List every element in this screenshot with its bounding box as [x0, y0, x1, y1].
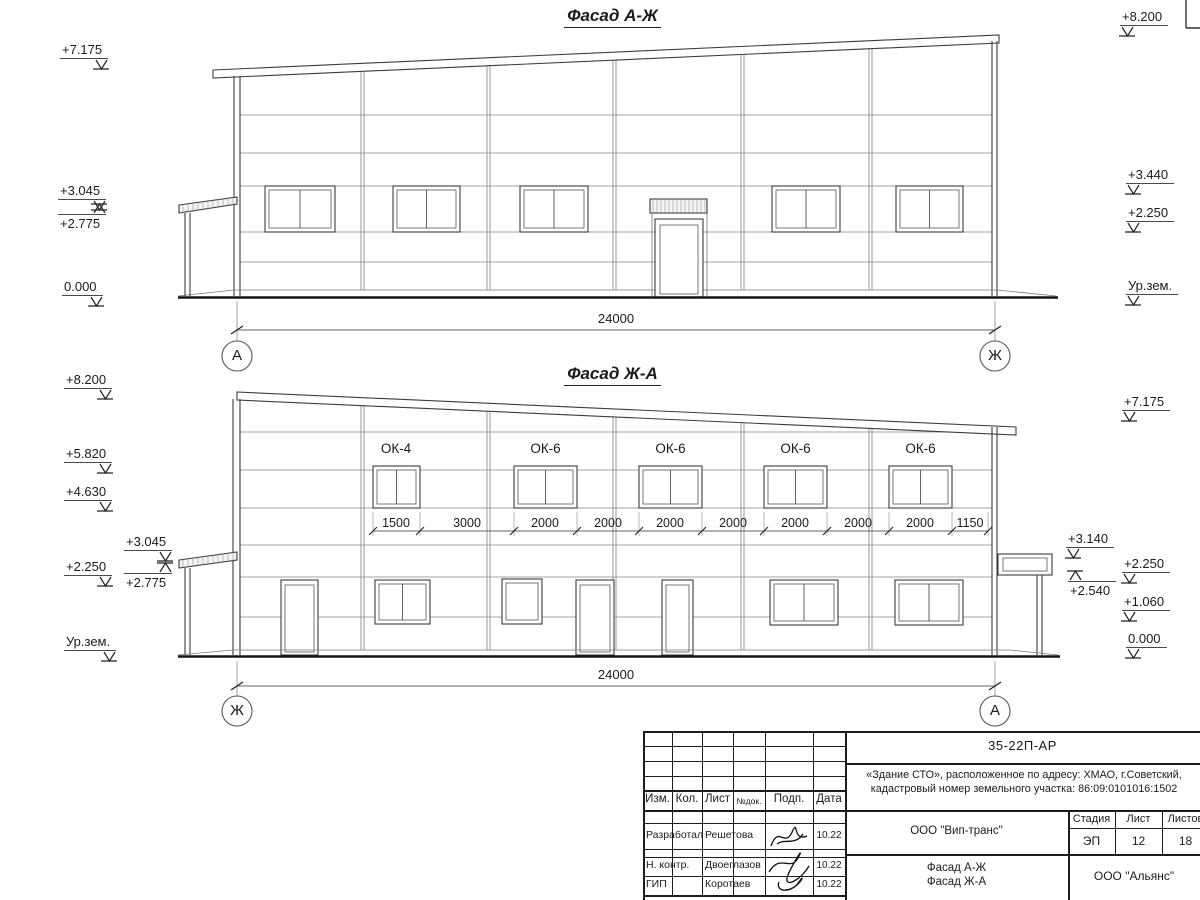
dimension-value: 2000	[710, 516, 756, 530]
elevation-mark: +3.045	[124, 534, 172, 551]
titleblock-line	[1068, 828, 1200, 829]
dimension-value: 2000	[835, 516, 881, 530]
sheets-total: 18	[1162, 834, 1200, 848]
elevation-mark: 0.000	[1126, 631, 1167, 648]
elevation-mark: +2.775	[124, 573, 172, 590]
elevation-value: +2.250	[1122, 556, 1170, 573]
dimension-value: 2000	[897, 516, 943, 530]
document-number: 35-22П-АР	[845, 738, 1200, 753]
window	[772, 186, 840, 232]
elevation-value: +3.045	[124, 534, 172, 551]
elevation-arrow-down-icon	[1120, 411, 1138, 422]
facade-title-text: Фасад Ж-А	[564, 364, 661, 386]
signer-role: Н. контр.	[646, 859, 689, 871]
sheet-corner	[1186, 0, 1200, 28]
overall-dimension: 24000	[585, 667, 647, 682]
facade-bottom-title: Фасад Ж-А	[555, 364, 670, 384]
sheet-number: 12	[1115, 834, 1162, 848]
elevation-arrow-down-icon	[1120, 573, 1138, 584]
door	[281, 580, 318, 655]
axis-label: А	[980, 696, 1010, 726]
titleblock-line	[845, 731, 847, 900]
titleblock-line	[643, 731, 645, 900]
project-description: «Здание СТО», расположенное по адресу: Х…	[848, 768, 1200, 796]
entrance-door	[650, 199, 707, 297]
elevation-value: +2.775	[58, 214, 106, 231]
elevation-value: +8.200	[1120, 9, 1168, 26]
dimension-value: 2000	[585, 516, 631, 530]
column-header-ndok: №док.	[733, 796, 765, 806]
porch-left	[179, 197, 237, 296]
elevation-value: +1.060	[1122, 594, 1170, 611]
elevation-value: Ур.зем.	[1126, 278, 1178, 295]
window	[895, 580, 963, 625]
elevation-arrow-down-icon	[1124, 222, 1142, 233]
walls	[234, 41, 997, 296]
elevation-arrow-up-icon	[90, 203, 108, 214]
elevation-mark: +2.540	[1068, 581, 1116, 598]
elevation-value: +5.820	[64, 446, 112, 463]
dimension-value: 2000	[772, 516, 818, 530]
sheets-header: Листов	[1162, 813, 1200, 825]
elevation-arrow-down-icon	[1124, 648, 1142, 659]
elevation-value: +2.540	[1068, 581, 1116, 598]
titleblock-line	[643, 810, 845, 812]
window	[393, 186, 460, 232]
titleblock-line	[845, 854, 1200, 856]
elevation-mark: Ур.зем.	[1126, 278, 1178, 295]
project-description-line1: «Здание СТО», расположенное по адресу: Х…	[866, 769, 1181, 781]
door	[662, 580, 693, 655]
bay-joints	[361, 48, 872, 290]
axis-label: Ж	[222, 696, 252, 726]
elevation-value: +2.775	[124, 573, 172, 590]
elevation-value: +7.175	[60, 42, 108, 59]
elevation-value: +2.250	[1126, 205, 1174, 222]
elevation-value: 0.000	[62, 279, 103, 296]
elevation-mark: +5.820	[64, 446, 112, 463]
window	[520, 186, 588, 232]
window	[373, 466, 420, 508]
titleblock-line	[643, 776, 845, 777]
elevation-mark: +3.440	[1126, 167, 1174, 184]
elevation-mark: +1.060	[1122, 594, 1170, 611]
elevation-value: +4.630	[64, 484, 112, 501]
window	[375, 580, 430, 624]
elevation-value: 0.000	[1126, 631, 1167, 648]
elevation-arrow-down-icon	[1120, 611, 1138, 622]
window	[764, 466, 827, 508]
plinth	[178, 290, 1056, 296]
titleblock-line	[643, 761, 845, 762]
elevation-arrow-down-icon	[87, 296, 105, 307]
canopy-right	[998, 554, 1052, 655]
sheet-header: Лист	[1115, 813, 1162, 825]
window-label: ОК-6	[514, 441, 577, 456]
title-block: 35-22П-АР «Здание СТО», расположенное по…	[643, 731, 1200, 900]
window	[889, 466, 952, 508]
porch-left	[179, 552, 237, 655]
signature	[763, 816, 827, 898]
stage-header: Стадия	[1068, 813, 1115, 825]
elevation-arrow-down-icon	[96, 576, 114, 587]
signer-role: Разработал	[646, 829, 703, 841]
window-label: ОК-6	[764, 441, 827, 456]
elevation-arrow-up-icon	[156, 562, 174, 573]
signer-name: Коротаев	[705, 878, 750, 890]
sheet-title-line1: Фасад А-Ж	[845, 862, 1068, 874]
signer-role: ГИП	[646, 878, 667, 890]
elevation-arrow-down-icon	[1118, 26, 1136, 37]
roof-fascia	[213, 35, 999, 78]
titleblock-line	[845, 763, 1200, 765]
client-name: ООО "Вип-транс"	[845, 825, 1068, 837]
elevation-arrow-down-icon	[96, 501, 114, 512]
elevation-arrow-down-icon	[96, 463, 114, 474]
window	[896, 186, 963, 232]
column-header-kol: Кол.	[672, 793, 702, 805]
facade-title-text: Фасад А-Ж	[564, 6, 661, 28]
titleblock-line	[643, 731, 1200, 733]
elevation-arrow-down-icon	[100, 651, 118, 662]
elevation-mark: Ур.зем.	[64, 634, 116, 651]
elevation-value: +7.175	[1122, 394, 1170, 411]
elevation-arrow-up-icon	[1066, 570, 1084, 581]
titleblock-line	[845, 810, 1200, 812]
elevation-mark: +3.140	[1066, 531, 1114, 548]
window-label: ОК-6	[889, 441, 952, 456]
dimension-value: 1150	[947, 516, 993, 530]
elevation-mark: +8.200	[64, 372, 112, 389]
titleblock-line	[702, 731, 703, 895]
signer-name: Двоеглазов	[705, 859, 761, 871]
elevation-mark: +2.250	[1126, 205, 1174, 222]
elevation-arrow-down-icon	[96, 389, 114, 400]
project-description-line2: кадастровый номер земельного участка: 86…	[871, 783, 1177, 795]
drawing-sheet: Фасад А-Ж +7.175 +3.045 +2.775 0.000 +8.…	[0, 0, 1200, 900]
elevation-arrow-down-icon	[1064, 548, 1082, 559]
elevation-arrow-down-icon	[156, 551, 174, 562]
dimension-value: 1500	[373, 516, 419, 530]
elevation-arrow-down-icon	[1124, 184, 1142, 195]
window	[514, 466, 577, 508]
company-name: ООО "Альянс"	[1068, 869, 1200, 883]
column-header-izm: Изм.	[643, 793, 672, 805]
elevation-value: +2.250	[64, 559, 112, 576]
axis-label: А	[222, 341, 252, 371]
elevation-mark: +4.630	[64, 484, 112, 501]
window	[265, 186, 335, 232]
elevation-mark: +3.045	[58, 183, 106, 200]
elevation-mark: +2.250	[64, 559, 112, 576]
elevation-arrow-down-icon	[92, 59, 110, 70]
titleblock-line	[643, 790, 845, 792]
elevation-mark: +2.775	[58, 214, 106, 231]
elevation-mark: 0.000	[62, 279, 103, 296]
column-header-data: Дата	[813, 793, 845, 805]
elevation-mark: +7.175	[1122, 394, 1170, 411]
elevation-value: +3.140	[1066, 531, 1114, 548]
dimension-value: 2000	[647, 516, 693, 530]
sheet-title-line2: Фасад Ж-А	[845, 876, 1068, 888]
elevation-mark: +8.200	[1120, 9, 1168, 26]
stage-value: ЭП	[1068, 834, 1115, 848]
facade-top-title: Фасад А-Ж	[555, 6, 670, 26]
column-header-list: Лист	[702, 793, 733, 805]
elevation-arrow-down-icon	[1124, 295, 1142, 306]
window	[770, 580, 838, 625]
elevation-mark: +2.250	[1122, 556, 1170, 573]
overall-dimension: 24000	[585, 311, 647, 326]
column-header-podp: Подп.	[765, 793, 813, 805]
window-label: ОК-6	[639, 441, 702, 456]
elevation-value: +8.200	[64, 372, 112, 389]
dimension-value: 3000	[444, 516, 490, 530]
window-label: ОК-4	[371, 441, 421, 456]
roof-fascia	[237, 392, 1016, 435]
window	[502, 579, 542, 624]
dimension-value: 2000	[522, 516, 568, 530]
signer-name: Решетова	[705, 829, 753, 841]
elevation-value: Ур.зем.	[64, 634, 116, 651]
elevation-mark: +7.175	[60, 42, 108, 59]
elevation-value: +3.045	[58, 183, 106, 200]
window	[639, 466, 702, 508]
door	[576, 580, 614, 655]
titleblock-line	[643, 746, 845, 747]
elevation-value: +3.440	[1126, 167, 1174, 184]
axis-label: Ж	[980, 341, 1010, 371]
